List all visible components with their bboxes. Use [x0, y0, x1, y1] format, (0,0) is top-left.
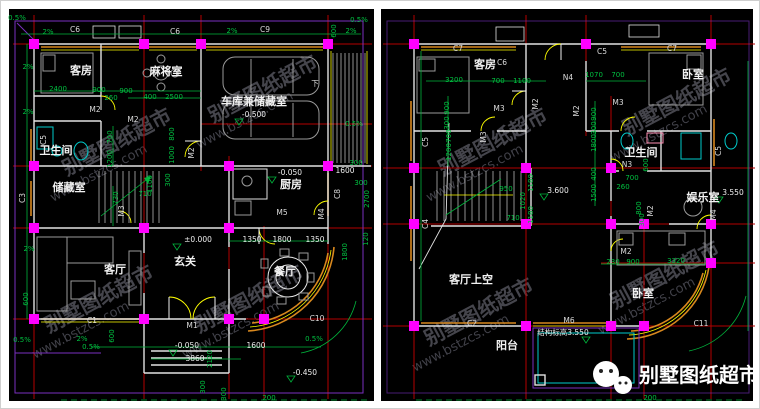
blueprint-svg: 别墅图纸超市www.bstzcs.com别墅图纸超市www.bstzcs.com…	[1, 1, 760, 409]
plan-label: -0.050	[278, 168, 302, 177]
plan-label: 1180	[527, 206, 535, 224]
plan-label: 2%	[226, 27, 237, 35]
plan-label: 1600	[246, 341, 265, 350]
cad-floorplan-screenshot: 别墅图纸超市www.bstzcs.com别墅图纸超市www.bstzcs.com…	[0, 0, 760, 409]
plan-label: 1100	[146, 175, 154, 193]
plan-label: 3.550	[722, 188, 744, 197]
plan-label: 730	[112, 191, 120, 204]
plan-label: 0.5%	[305, 335, 323, 343]
plan-label: 2%	[345, 27, 356, 35]
plan-label: 1200	[445, 143, 453, 161]
plan-label: C7	[667, 44, 677, 53]
plan-label: 客厅	[103, 262, 126, 276]
column-marker	[29, 223, 39, 233]
plan-label: 3.600	[547, 186, 569, 195]
plan-label: 卧室	[632, 286, 654, 300]
plan-label: 0.5%	[345, 120, 363, 128]
plan-label: C9	[260, 25, 270, 34]
column-marker	[409, 321, 419, 331]
plan-label: 餐厅	[273, 264, 296, 278]
plan-label: 1200	[106, 150, 114, 168]
plan-label: 储藏室	[53, 180, 86, 194]
plan-label: 700	[491, 77, 504, 85]
plan-label: M2	[620, 247, 631, 256]
plan-label: 卧室	[682, 67, 704, 81]
plan-label: M3	[493, 104, 504, 113]
plan-label: 1100	[513, 77, 531, 85]
logo-text: 别墅图纸超市	[638, 363, 759, 387]
plan-label: 300	[220, 387, 228, 400]
plan-label: M3	[612, 98, 623, 107]
plan-label: 1350	[305, 235, 324, 244]
column-marker	[259, 314, 269, 324]
column-marker	[139, 314, 149, 324]
plan-label: C5	[421, 137, 430, 147]
plan-label: 玄关	[174, 254, 196, 268]
plan-label: 950	[499, 185, 512, 193]
plan-label: C1	[87, 316, 97, 325]
plan-label: 400	[590, 167, 598, 180]
column-marker	[323, 161, 333, 171]
plan-label: C5	[39, 135, 48, 145]
column-marker	[224, 223, 234, 233]
column-marker	[29, 161, 39, 171]
plan-label: ±0.000	[184, 235, 212, 244]
plan-label: C6	[170, 27, 180, 36]
column-marker	[29, 314, 39, 324]
plan-label: 710	[506, 214, 519, 222]
plan-label: 2%	[22, 108, 33, 116]
plan-label: 900	[443, 101, 451, 114]
plan-label: 700	[625, 174, 638, 182]
plan-label: -0.500	[242, 110, 266, 119]
column-marker	[139, 223, 149, 233]
plan-label: 1070	[585, 71, 603, 79]
plan-label: 1180	[527, 174, 535, 192]
plan-label: 600	[330, 24, 338, 37]
plan-label: 1020	[519, 192, 527, 210]
column-marker	[639, 321, 649, 331]
plan-label: M3	[117, 205, 126, 216]
plan-label: 厨房	[280, 177, 302, 191]
plan-label: 客厅上空	[448, 272, 493, 286]
plan-label: 下	[311, 79, 319, 88]
column-marker	[706, 39, 716, 49]
column-marker	[409, 163, 419, 173]
column-marker	[606, 163, 616, 173]
plan-label: C8	[333, 189, 342, 199]
plan-label: 120	[362, 232, 370, 245]
plan-label: 800	[635, 201, 643, 214]
plan-label: 900	[92, 86, 105, 94]
plan-label: 300	[638, 213, 646, 226]
plan-label: 1500	[590, 184, 598, 202]
plan-label: 客房	[473, 57, 496, 71]
plan-label: M1	[186, 321, 197, 330]
plan-label: 2700	[363, 190, 371, 208]
column-marker	[409, 39, 419, 49]
plan-label: M4	[317, 208, 326, 219]
plan-label: 3200	[445, 76, 463, 84]
plan-label: C4	[421, 219, 430, 229]
plan-label: C10	[310, 314, 325, 323]
column-marker	[581, 39, 591, 49]
plan-label: 2400	[49, 85, 67, 93]
plan-label: M2	[531, 98, 540, 109]
column-marker	[521, 321, 531, 331]
plan-label: 900	[590, 107, 598, 120]
plan-label: 300	[590, 121, 598, 134]
plan-label: 2500	[165, 93, 183, 101]
plan-label: 1600	[335, 166, 354, 175]
plan-label: M2	[572, 105, 581, 116]
plan-label: M2	[89, 105, 100, 114]
plan-label: 300	[443, 116, 451, 129]
plan-label: 600	[22, 292, 30, 305]
plan-label: 200	[643, 394, 656, 402]
plan-label: 300	[199, 380, 207, 393]
plan-label: 300	[354, 179, 367, 187]
plan-label: 麻将室	[149, 64, 183, 78]
plan-label: 1000	[168, 146, 176, 164]
column-marker	[139, 39, 149, 49]
plan-label: 900	[119, 87, 132, 95]
plan-label: C5	[597, 47, 607, 56]
column-marker	[224, 161, 234, 171]
plan-label: C7	[453, 44, 463, 53]
plan-label: 1800	[590, 134, 598, 152]
plan-label: 2%	[42, 28, 53, 36]
plan-label: N4	[563, 73, 574, 82]
plan-label: 1350	[242, 235, 261, 244]
plan-label: 400	[143, 93, 156, 101]
plan-label: C11	[694, 319, 709, 328]
plan-label: 卫生间	[625, 145, 658, 159]
plan-label: C3	[18, 193, 27, 203]
plan-label: M4	[709, 209, 718, 220]
plan-label: 3860	[185, 354, 204, 363]
plan-label: 娱乐室	[687, 190, 720, 204]
plan-label: -0.450	[293, 368, 317, 377]
plan-label: M6	[563, 316, 574, 325]
plan-label: 900	[626, 258, 639, 266]
plan-label: 1800	[341, 243, 349, 261]
column-marker	[409, 219, 419, 229]
column-marker	[606, 321, 616, 331]
plan-label: M2	[127, 115, 138, 124]
column-marker	[29, 39, 39, 49]
plan-label: 700	[106, 130, 114, 143]
plan-label: 230	[606, 258, 619, 266]
column-marker	[323, 39, 333, 49]
plan-label: M5	[276, 208, 287, 217]
plan-label: 300	[164, 173, 172, 186]
plan-label: C6	[70, 25, 80, 34]
plan-label: 2%	[23, 245, 34, 253]
plan-label: M2	[187, 147, 196, 158]
plan-label: 600	[108, 329, 116, 342]
plan-label: N3	[622, 160, 633, 169]
plan-label: 260	[104, 94, 117, 102]
column-marker	[521, 163, 531, 173]
plan-label: 0.5%	[8, 14, 26, 22]
plan-label: M3	[479, 131, 488, 142]
plan-label: 车库兼储藏室	[221, 94, 287, 108]
plan-label: 客房	[69, 63, 92, 77]
plan-label: 结构标高3.550	[537, 327, 589, 337]
plan-label: 260	[616, 183, 629, 191]
plan-label: 3320	[667, 257, 685, 265]
plan-label: 0.5%	[13, 336, 31, 344]
column-marker	[196, 39, 206, 49]
plan-label: C5	[714, 146, 723, 156]
plan-label: 600	[642, 158, 650, 171]
plan-label: 0.5%	[82, 343, 100, 351]
plan-label: 700	[445, 129, 453, 142]
plan-label: 2%	[76, 335, 87, 343]
plan-label: 200	[262, 394, 275, 402]
plan-label: M2	[646, 205, 655, 216]
plan-label: 700	[611, 71, 624, 79]
plan-label: C2	[467, 319, 477, 328]
plan-label: 1800	[272, 235, 291, 244]
plan-label: 800	[168, 127, 176, 140]
plan-label: -0.050	[175, 341, 199, 350]
column-marker	[606, 219, 616, 229]
column-marker	[224, 314, 234, 324]
column-marker	[706, 258, 716, 268]
plan-label: C6	[497, 58, 507, 67]
plan-label: 0.5%	[350, 16, 368, 24]
plan-label: 2120	[206, 350, 214, 368]
plan-label: 2%	[22, 63, 33, 71]
plan-label: 阳台	[496, 338, 518, 352]
